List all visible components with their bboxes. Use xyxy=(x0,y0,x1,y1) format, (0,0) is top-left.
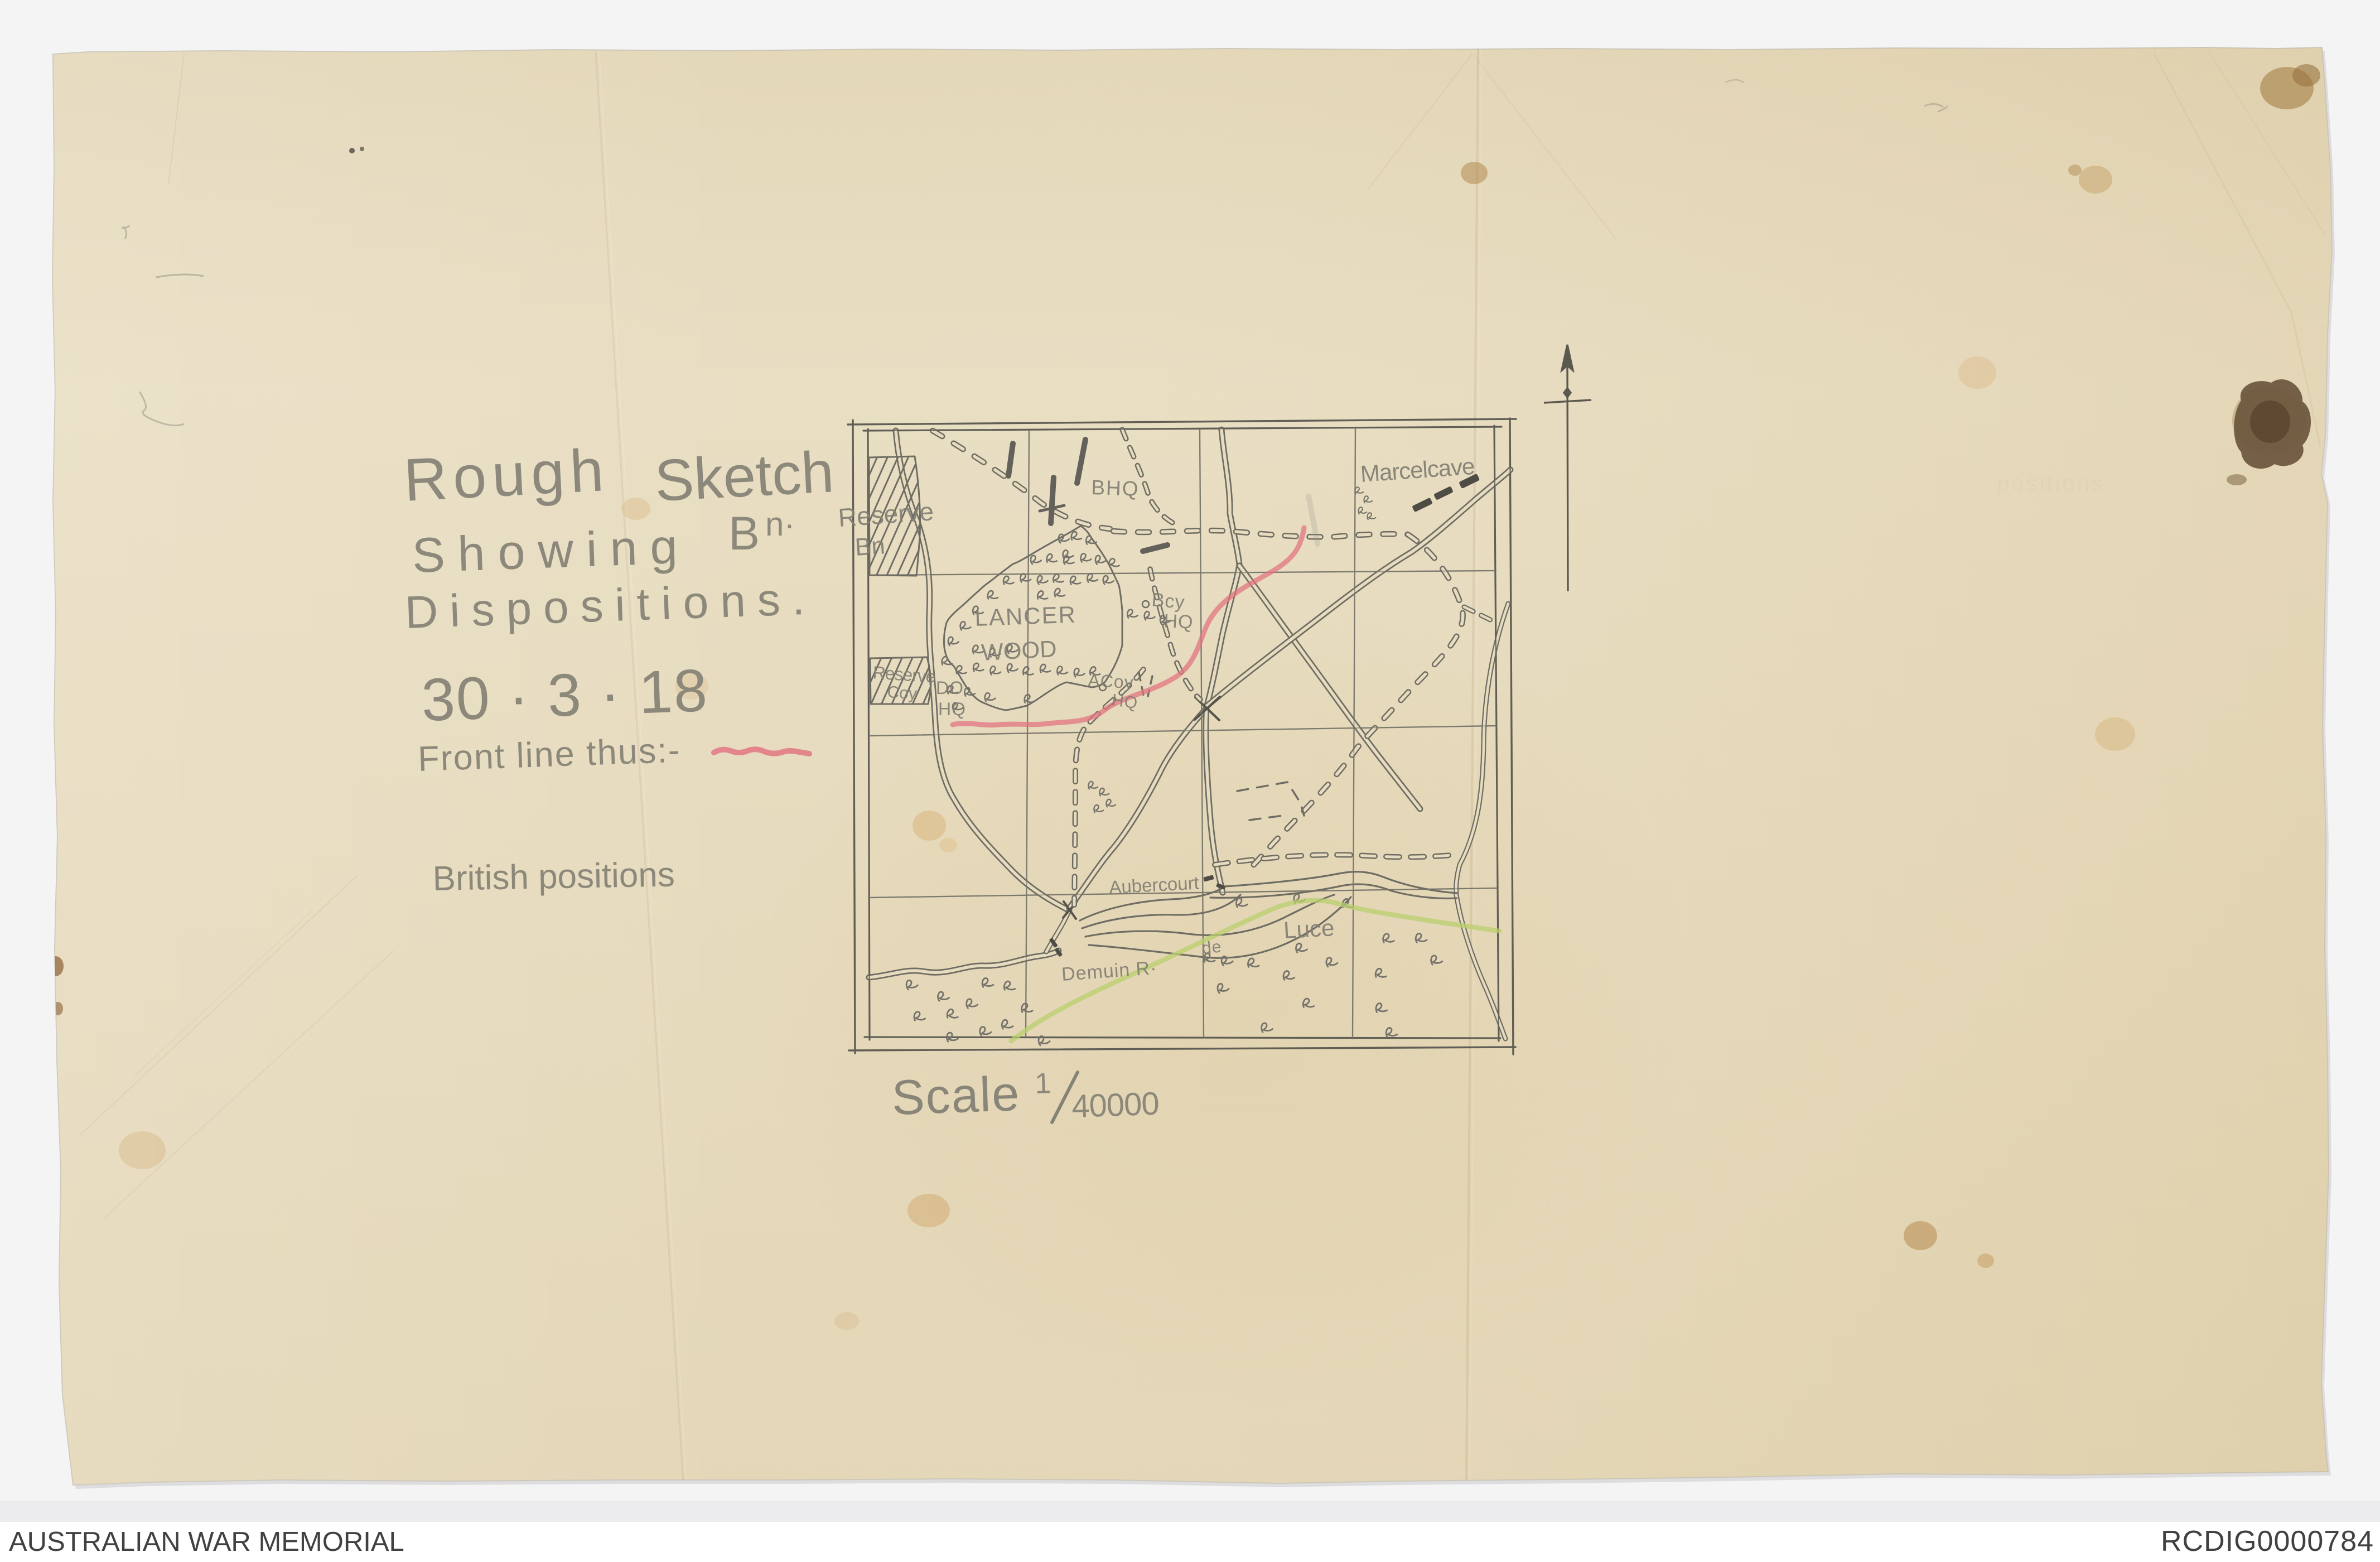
svg-text:British positions: British positions xyxy=(432,855,675,898)
svg-text:WOOD: WOOD xyxy=(981,635,1058,666)
svg-text:Luce: Luce xyxy=(1283,914,1335,943)
svg-text:Sketch: Sketch xyxy=(653,439,836,514)
svg-text:DO: DO xyxy=(936,678,964,698)
svg-text:HQ: HQ xyxy=(938,699,966,719)
svg-text:40000: 40000 xyxy=(1071,1086,1159,1125)
svg-text:RCDIG0000784: RCDIG0000784 xyxy=(2161,1525,2374,1558)
svg-text:Bcy: Bcy xyxy=(1151,589,1186,613)
svg-text:1: 1 xyxy=(1034,1067,1051,1100)
svg-text:positions: positions xyxy=(1997,471,2105,496)
svg-text:Bn: Bn xyxy=(854,532,886,561)
svg-text:Scale: Scale xyxy=(891,1066,1021,1125)
svg-text:LANCER: LANCER xyxy=(974,601,1077,631)
svg-text:de: de xyxy=(1201,937,1223,958)
svg-text:HQ: HQ xyxy=(1164,610,1194,633)
svg-text:Rough: Rough xyxy=(402,436,611,514)
svg-text:n·: n· xyxy=(765,505,795,543)
svg-text:Coy: Coy xyxy=(887,683,918,703)
svg-text:B: B xyxy=(728,507,760,560)
svg-text:HQ: HQ xyxy=(1111,691,1139,712)
svg-text:Showing: Showing xyxy=(411,518,691,583)
svg-text:BHQ: BHQ xyxy=(1091,476,1140,500)
svg-text:AUSTRALIAN WAR MEMORIAL: AUSTRALIAN WAR MEMORIAL xyxy=(9,1527,404,1557)
svg-text:30 · 3 · 18: 30 · 3 · 18 xyxy=(421,656,709,734)
svg-text:ACoy: ACoy xyxy=(1088,670,1135,692)
